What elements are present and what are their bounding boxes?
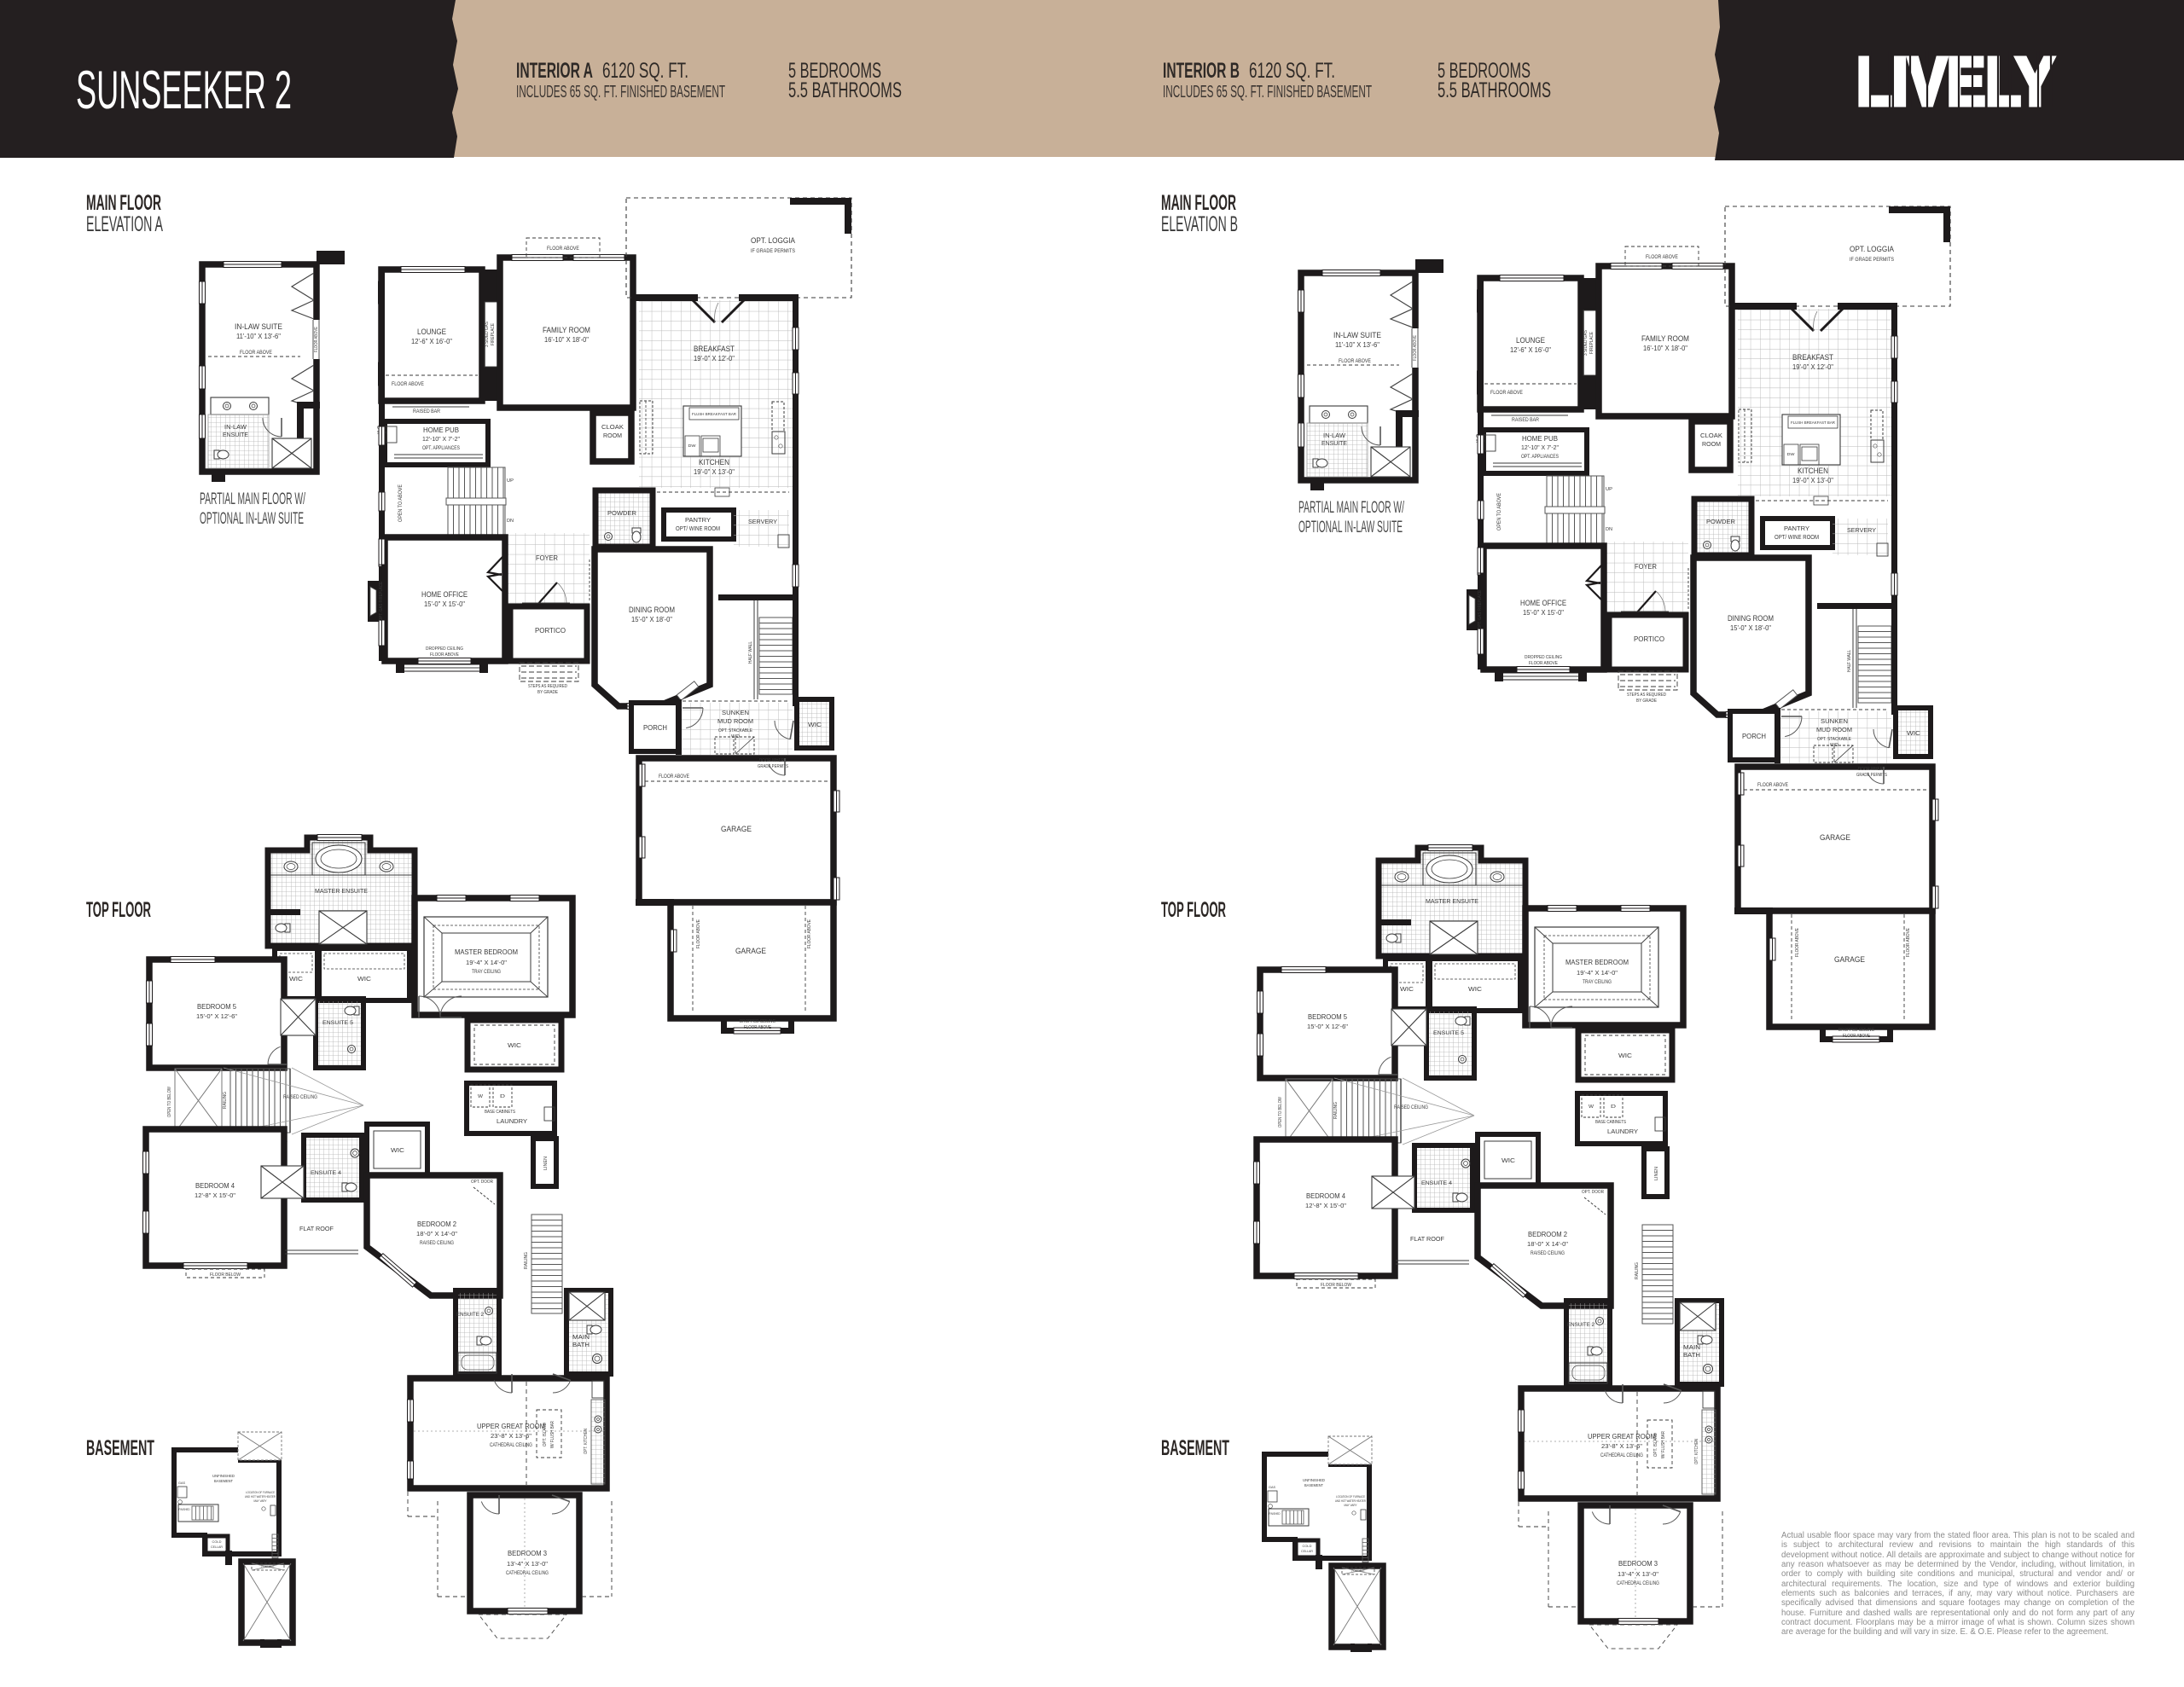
svg-text:INCLUDES 65 SQ. FT. FINISHED B: INCLUDES 65 SQ. FT. FINISHED BASEMENT: [516, 83, 725, 101]
svg-text:LIVELY: LIVELY: [1856, 43, 2054, 119]
svg-text:BASEMENT: BASEMENT: [1161, 1436, 1229, 1460]
svg-text:5.5 BATHROOMS: 5.5 BATHROOMS: [1438, 78, 1551, 102]
svg-text:MAIN FLOOR: MAIN FLOOR: [1161, 191, 1236, 215]
svg-text:SUNSEEKER 2: SUNSEEKER 2: [76, 61, 292, 120]
svg-text:INTERIOR A: INTERIOR A: [516, 59, 593, 83]
svg-text:ELEVATION B: ELEVATION B: [1161, 212, 1238, 236]
svg-text:5.5 BATHROOMS: 5.5 BATHROOMS: [788, 78, 902, 102]
svg-text:TOP FLOOR: TOP FLOOR: [1161, 898, 1226, 922]
svg-text:BASEMENT: BASEMENT: [86, 1436, 154, 1460]
svg-text:ELEVATION A: ELEVATION A: [86, 212, 163, 236]
svg-text:TOP FLOOR: TOP FLOOR: [86, 898, 151, 922]
svg-text:MAIN FLOOR: MAIN FLOOR: [86, 191, 161, 215]
svg-text:INTERIOR B: INTERIOR B: [1163, 59, 1240, 83]
svg-text:6120 SQ. FT.: 6120 SQ. FT.: [602, 59, 688, 83]
svg-text:INCLUDES 65 SQ. FT. FINISHED B: INCLUDES 65 SQ. FT. FINISHED BASEMENT: [1163, 83, 1372, 101]
svg-text:6120 SQ. FT.: 6120 SQ. FT.: [1249, 59, 1335, 83]
